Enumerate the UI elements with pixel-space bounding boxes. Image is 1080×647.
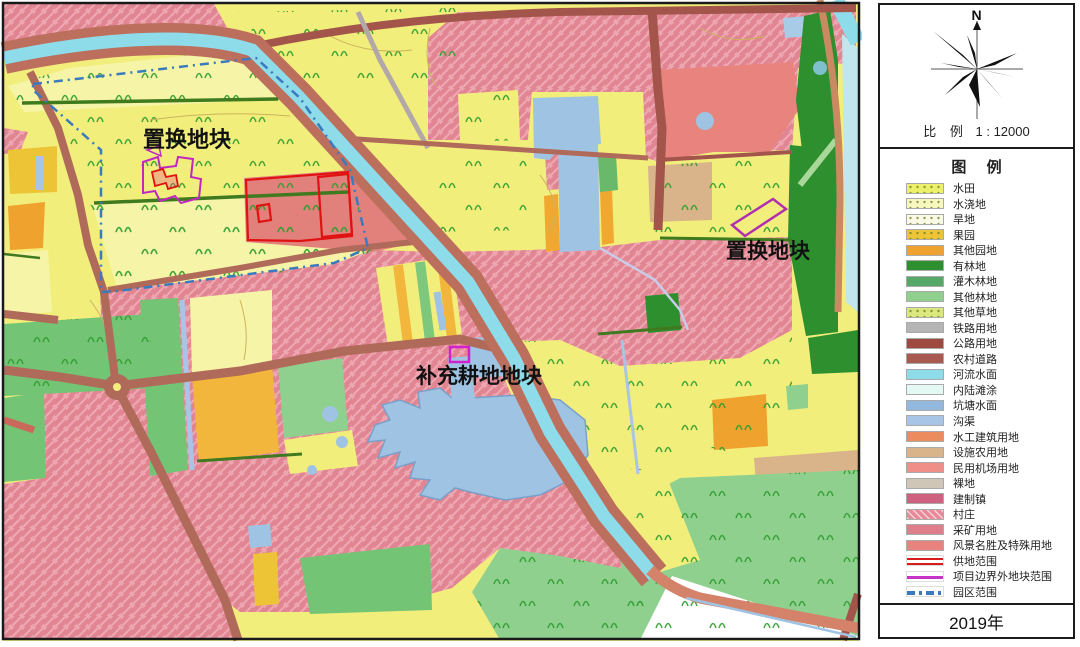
legend-item-facility-agriculture: 设施农用地 bbox=[906, 445, 1069, 459]
legend-item-dry-land: 旱地 bbox=[906, 212, 1069, 226]
legend-swatch bbox=[906, 229, 944, 240]
compass-rose-icon bbox=[917, 15, 1037, 121]
map-label-replacement-parcel-west: 置换地块 bbox=[143, 127, 232, 152]
legend-title: 图 例 bbox=[888, 156, 1073, 177]
map-year: 2019年 bbox=[949, 609, 1004, 634]
legend-item-shrub-forest: 灌木林地 bbox=[906, 274, 1069, 288]
legend-swatch bbox=[906, 384, 944, 395]
legend-item-hydraulic-construction: 水工建筑用地 bbox=[906, 430, 1069, 444]
legend-swatch bbox=[906, 198, 944, 209]
map-label-replacement-parcel-east: 置换地块 bbox=[726, 239, 811, 263]
legend-swatch bbox=[906, 260, 944, 271]
legend-item-paddy-field: 水田 bbox=[906, 181, 1069, 195]
legend-item-scenic-special: 风景名胜及特殊用地 bbox=[906, 538, 1069, 552]
legend-item-other-garden: 其他园地 bbox=[906, 243, 1069, 257]
year-section: 2019年 bbox=[880, 603, 1073, 637]
scale-prefix: 比 例 bbox=[923, 124, 968, 139]
legend-item-orchard: 果园 bbox=[906, 228, 1069, 242]
legend-item-external-parcel-boundary: 项目边界外地块范围 bbox=[906, 569, 1069, 583]
legend-item-bare-land: 裸地 bbox=[906, 476, 1069, 490]
map-canvas: 置换地块 置换地块 补充耕地地块 bbox=[0, 0, 862, 647]
legend-swatch bbox=[906, 555, 944, 566]
legend-item-park-boundary: 园区范围 bbox=[906, 585, 1069, 599]
legend-item-forest: 有林地 bbox=[906, 259, 1069, 273]
legend-swatch bbox=[906, 400, 944, 411]
legend-swatch bbox=[906, 369, 944, 380]
legend-item-town: 建制镇 bbox=[906, 492, 1069, 506]
legend-swatch bbox=[906, 524, 944, 535]
scale-value: 1 : 12000 bbox=[976, 124, 1030, 139]
compass-section: N 比 例 1 : 12000 bbox=[880, 5, 1073, 149]
legend-swatch bbox=[906, 509, 944, 520]
legend-swatch bbox=[906, 493, 944, 504]
legend-section: 图 例 水田 水浇地 旱地 果园 其他园地 有林地 灌木林地 其他林地 其他草地… bbox=[880, 149, 1073, 603]
legend-item-supply-boundary: 供地范围 bbox=[906, 554, 1069, 568]
legend-item-civil-airport: 民用机场用地 bbox=[906, 461, 1069, 475]
legend-item-river-surface: 河流水面 bbox=[906, 367, 1069, 381]
legend-item-ditch: 沟渠 bbox=[906, 414, 1069, 428]
map-scale: 比 例 1 : 12000 bbox=[880, 121, 1073, 140]
legend-item-other-forest: 其他林地 bbox=[906, 290, 1069, 304]
legend-swatch bbox=[906, 478, 944, 489]
legend-swatch bbox=[906, 462, 944, 473]
legend-swatch bbox=[906, 307, 944, 318]
legend-item-railway: 铁路用地 bbox=[906, 321, 1069, 335]
land-use-map: 置换地块 置换地块 补充耕地地块 bbox=[0, 0, 862, 647]
legend-swatch bbox=[906, 214, 944, 225]
legend-swatch bbox=[906, 571, 944, 582]
legend-swatch bbox=[906, 353, 944, 364]
screenshot-root: 置换地块 置换地块 补充耕地地块 N bbox=[0, 0, 1080, 647]
legend-swatch bbox=[906, 540, 944, 551]
legend-swatch bbox=[906, 276, 944, 287]
legend-swatch bbox=[906, 586, 944, 597]
legend-item-rural-road: 农村道路 bbox=[906, 352, 1069, 366]
legend-item-village: 村庄 bbox=[906, 507, 1069, 521]
legend-item-other-grassland: 其他草地 bbox=[906, 305, 1069, 319]
legend-swatch bbox=[906, 183, 944, 194]
map-label-supplementary-farmland: 补充耕地地块 bbox=[415, 364, 543, 388]
legend-swatch bbox=[906, 338, 944, 349]
legend-item-irrigated-land: 水浇地 bbox=[906, 197, 1069, 211]
map-info-panel: N 比 例 1 : 12000 bbox=[878, 3, 1075, 639]
legend-swatch bbox=[906, 415, 944, 426]
legend-swatch bbox=[906, 245, 944, 256]
legend-rows: 水田 水浇地 旱地 果园 其他园地 有林地 灌木林地 其他林地 其他草地 铁路用… bbox=[880, 181, 1073, 603]
legend-swatch bbox=[906, 431, 944, 442]
legend-swatch bbox=[906, 447, 944, 458]
legend-item-mining: 采矿用地 bbox=[906, 523, 1069, 537]
legend-swatch bbox=[906, 291, 944, 302]
legend-item-highway: 公路用地 bbox=[906, 336, 1069, 350]
legend-swatch bbox=[906, 322, 944, 333]
legend-item-inland-mudflat: 内陆滩涂 bbox=[906, 383, 1069, 397]
legend-item-pond-surface: 坑塘水面 bbox=[906, 398, 1069, 412]
